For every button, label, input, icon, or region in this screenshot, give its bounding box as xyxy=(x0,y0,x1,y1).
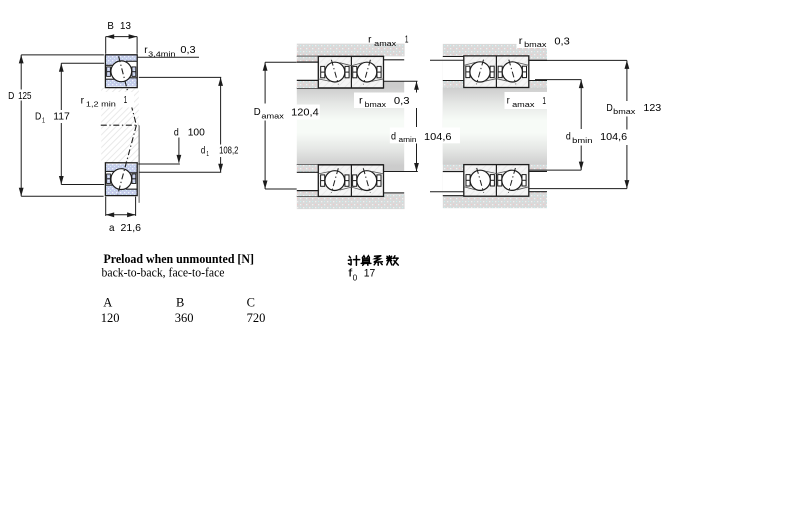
svg-text:0,3: 0,3 xyxy=(554,36,570,48)
svg-text:13: 13 xyxy=(120,20,131,32)
svg-text:B: B xyxy=(176,296,184,310)
svg-text:r: r xyxy=(359,95,363,107)
svg-text:r: r xyxy=(519,35,523,47)
svg-text:120,4: 120,4 xyxy=(291,106,319,118)
svg-text:21,6: 21,6 xyxy=(121,222,142,234)
svg-text:100: 100 xyxy=(188,127,205,139)
svg-text:360: 360 xyxy=(175,311,194,325)
svg-text:104,6: 104,6 xyxy=(424,131,452,143)
svg-text:bmax: bmax xyxy=(524,40,547,49)
svg-text:amax: amax xyxy=(261,111,284,120)
svg-text:17: 17 xyxy=(364,268,376,280)
svg-text:amax: amax xyxy=(512,100,535,109)
svg-text:bmax: bmax xyxy=(365,100,387,109)
svg-text:D: D xyxy=(606,102,613,114)
svg-text:B: B xyxy=(107,20,114,32)
svg-text:1,2 min: 1,2 min xyxy=(86,99,116,108)
svg-text:1: 1 xyxy=(542,95,546,107)
svg-text:108,2: 108,2 xyxy=(219,144,238,156)
svg-text:123: 123 xyxy=(643,102,661,114)
svg-text:bmax: bmax xyxy=(613,107,635,116)
svg-text:bmin: bmin xyxy=(572,136,592,145)
svg-text:104,6: 104,6 xyxy=(600,131,627,143)
svg-text:d: d xyxy=(174,127,179,139)
svg-text:1: 1 xyxy=(206,149,209,158)
svg-text:r: r xyxy=(507,95,510,107)
svg-text:D: D xyxy=(8,90,15,102)
svg-text:1: 1 xyxy=(42,116,45,125)
svg-text:back-to-back, face-to-face: back-to-back, face-to-face xyxy=(102,265,225,279)
svg-text:720: 720 xyxy=(247,311,266,325)
svg-text:120: 120 xyxy=(101,311,120,325)
svg-text:1: 1 xyxy=(405,34,409,46)
svg-text:a: a xyxy=(109,222,115,234)
svg-text:d: d xyxy=(391,131,396,143)
svg-text:A: A xyxy=(103,296,112,310)
svg-text:d: d xyxy=(201,144,206,156)
svg-text:125: 125 xyxy=(18,90,32,102)
svg-text:117: 117 xyxy=(53,111,70,123)
svg-text:r: r xyxy=(81,94,85,106)
svg-text:0,3: 0,3 xyxy=(180,44,195,56)
svg-text:amin: amin xyxy=(399,135,417,144)
svg-text:D: D xyxy=(254,106,261,118)
svg-text:D: D xyxy=(35,111,42,123)
svg-text:1: 1 xyxy=(124,94,128,106)
svg-text:0,3: 0,3 xyxy=(394,95,410,107)
svg-text:C: C xyxy=(247,296,255,310)
svg-text:amax: amax xyxy=(374,39,396,48)
svg-text:d: d xyxy=(566,131,571,143)
svg-text:r: r xyxy=(368,33,372,45)
svg-text:3,4min: 3,4min xyxy=(148,50,175,59)
svg-text:Preload when unmounted [N]: Preload when unmounted [N] xyxy=(104,252,255,266)
svg-text:0: 0 xyxy=(353,273,358,282)
